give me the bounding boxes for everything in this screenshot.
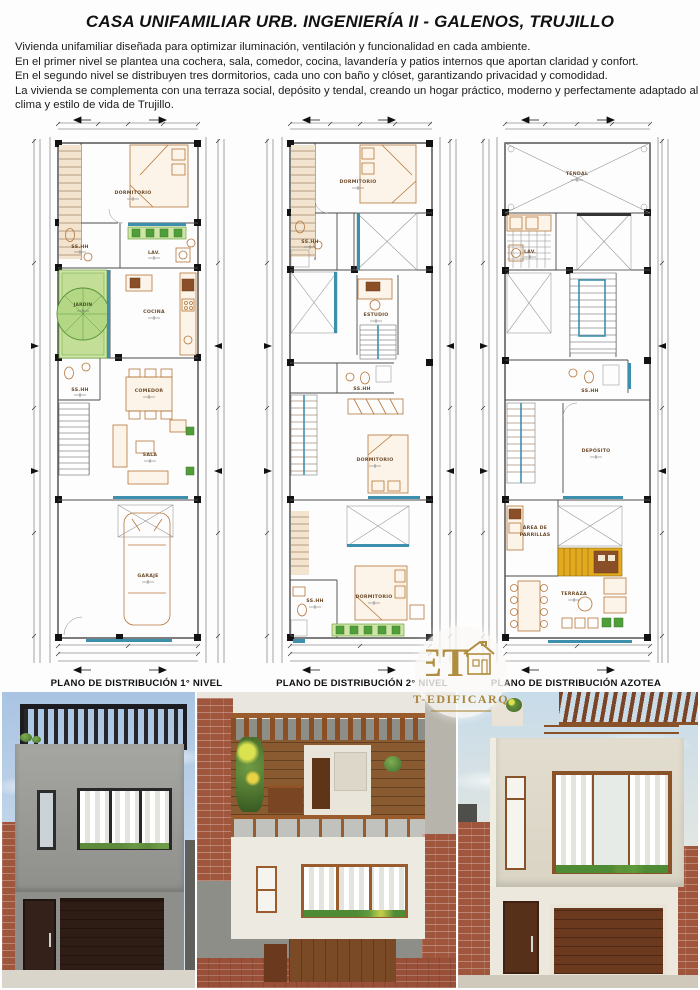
- description-line: La vivienda se complementa con una terra…: [15, 84, 691, 99]
- terrace-furniture: [511, 578, 627, 631]
- room-label-estudio: ESTUDIO: [364, 312, 389, 318]
- window-plants: [556, 865, 668, 873]
- center-stair: [570, 273, 616, 353]
- description-line: En el primer nivel se plantea una cocher…: [15, 55, 691, 70]
- presentation-sheet: { "page": { "title": "CASA UNIFAMILIAR U…: [0, 0, 700, 990]
- grill-counter: [558, 548, 622, 576]
- garden: [57, 270, 109, 358]
- garage: [64, 505, 173, 635]
- render-terrace-aerial: [197, 692, 456, 988]
- bed2: [368, 435, 408, 493]
- room-label-deposito: DEPÓSITO: [582, 447, 611, 454]
- void-center: [558, 506, 622, 546]
- room-label-cocina: COCINA: [143, 309, 165, 315]
- room-label-parrillas-2: PARRILLAS: [520, 532, 551, 538]
- living-set: [113, 420, 194, 484]
- neighbor-brick-wall: [2, 822, 16, 979]
- dining-set: [126, 369, 172, 419]
- bathroom3-fixtures: [291, 587, 307, 636]
- door-swing: [563, 403, 577, 417]
- window-plants: [80, 843, 168, 849]
- project-description: Vivienda unifamiliar diseñada para optim…: [15, 40, 691, 113]
- window-planter: [304, 910, 405, 917]
- description-line: Vivienda unifamiliar diseñada para optim…: [15, 40, 691, 55]
- entry-door: [264, 944, 287, 982]
- house-beige: [490, 738, 677, 975]
- stair-volume: [304, 745, 370, 815]
- roof-door: [312, 758, 329, 810]
- void-left: [291, 272, 337, 333]
- house-grey: [15, 692, 185, 988]
- narrow-window: [505, 776, 526, 870]
- logo-name: T-EDIFICARQ: [398, 692, 524, 707]
- main-window: [77, 788, 171, 850]
- description-line: clima y estilo de vida de Trujillo.: [15, 98, 691, 113]
- room-label-jardin: JARDIN: [73, 302, 93, 308]
- room-label-comedor: COMEDOR: [135, 388, 164, 394]
- room-label-parrillas-1: ÁREA DE: [523, 524, 548, 531]
- description-line: En el segundo nivel se distribuyen tres …: [15, 69, 691, 84]
- entry-door: [23, 899, 56, 974]
- room-label-sshh2: SS.HH: [71, 387, 88, 393]
- pavement: [2, 970, 195, 988]
- floor-plan-azotea: TENDAL LAV. SS.HH DEPÓSITO: [478, 115, 674, 689]
- bed: [130, 145, 188, 207]
- room-label-lav: LAV.: [524, 249, 536, 255]
- void-left: [507, 273, 551, 333]
- main-window: [552, 771, 672, 874]
- void-right: [577, 213, 631, 270]
- void-right: [357, 213, 417, 270]
- door-swing: [109, 209, 123, 223]
- plan-caption-nivel1: PLANO DE DISTRIBUCIÓN 1° NIVEL: [28, 678, 245, 689]
- void-center: [347, 506, 409, 547]
- laundry-area: [507, 215, 551, 268]
- room-label-dormitorio3: DORMITORIO: [356, 594, 393, 600]
- room-label-garaje: GARAJE: [137, 573, 158, 579]
- room-label-dormitorio: DORMITORIO: [115, 190, 152, 196]
- logo-monogram: ET: [426, 640, 469, 685]
- room-label-tendal: TENDAL: [566, 171, 588, 177]
- long-stair: [291, 395, 317, 475]
- floor-plan-nivel2-drawing: DORMITORIO SS.HH ESTUDIO SS.HH: [262, 115, 462, 677]
- roof-pergola-slats: [559, 692, 698, 725]
- neighbor-brick-left: [197, 698, 233, 882]
- logo-tagline-rule: [431, 710, 491, 712]
- render-facade-beige: [458, 692, 698, 988]
- floor-plan-nivel1-drawing: DORMITORIO SS.HH LAV. JARDIN COCINA SS.H…: [28, 115, 245, 677]
- room-label-sshh1: SS.HH: [301, 239, 318, 245]
- lower-stair: [291, 511, 309, 575]
- center-stair: [360, 325, 396, 359]
- render-facade-grey: [2, 692, 195, 988]
- narrow-window: [37, 790, 57, 851]
- garage-door: [550, 904, 667, 978]
- room-label-dormitorio2: DORMITORIO: [357, 457, 394, 463]
- render-gallery: [0, 692, 700, 988]
- logo-house-monogram-icon: ET: [426, 634, 496, 688]
- main-window: [301, 864, 408, 918]
- garage-door: [60, 898, 164, 975]
- floor-plan-nivel2: DORMITORIO SS.HH ESTUDIO SS.HH: [262, 115, 462, 689]
- bed3: [355, 566, 424, 620]
- door-swing: [315, 200, 328, 213]
- bed: [360, 145, 416, 203]
- bathroom-fixtures: [569, 363, 631, 389]
- bathroom2-fixtures: [346, 366, 391, 384]
- terrace-pot-plant: [384, 756, 402, 772]
- studio-watermark: ET T-EDIFICARQ: [398, 626, 524, 728]
- room-label-sshh: SS.HH: [581, 388, 598, 394]
- entry-door: [503, 901, 539, 974]
- left-stair: [507, 403, 535, 483]
- room-label-sshh1: SS.HH: [71, 244, 88, 250]
- room-label-terraza: TERRAZA: [561, 591, 587, 597]
- neighbor-wall-right: [185, 840, 195, 970]
- room-label-sala: SALA: [143, 452, 158, 458]
- room-label-dormitorio1: DORMITORIO: [340, 179, 377, 185]
- garage-door: [289, 939, 396, 982]
- laundry-fixtures: [176, 239, 195, 262]
- dimension-frame: [481, 122, 668, 663]
- pavement: [458, 975, 698, 988]
- floor-plan-nivel1: DORMITORIO SS.HH LAV. JARDIN COCINA SS.H…: [28, 115, 245, 689]
- wardrobe: [348, 399, 403, 414]
- terrace-bench: [268, 785, 303, 812]
- floor-plan-azotea-drawing: TENDAL LAV. SS.HH DEPÓSITO: [478, 115, 674, 677]
- desk: [358, 279, 392, 310]
- main-stair: [59, 403, 89, 475]
- terrace-plant-vine: [236, 737, 263, 812]
- narrow-window: [256, 866, 277, 913]
- room-label-sshh2: SS.HH: [353, 386, 370, 392]
- section-arrows: [480, 117, 666, 673]
- grill-cabinets: [507, 506, 523, 550]
- house-white: [231, 713, 425, 982]
- bathroom2-fixtures: [65, 363, 91, 379]
- tendal-area: [505, 143, 650, 213]
- room-label-lav: LAV.: [148, 250, 160, 256]
- room-label-sshh3: SS.HH: [306, 598, 323, 604]
- page-title: CASA UNIFAMILIAR URB. INGENIERÍA II - GA…: [0, 12, 700, 32]
